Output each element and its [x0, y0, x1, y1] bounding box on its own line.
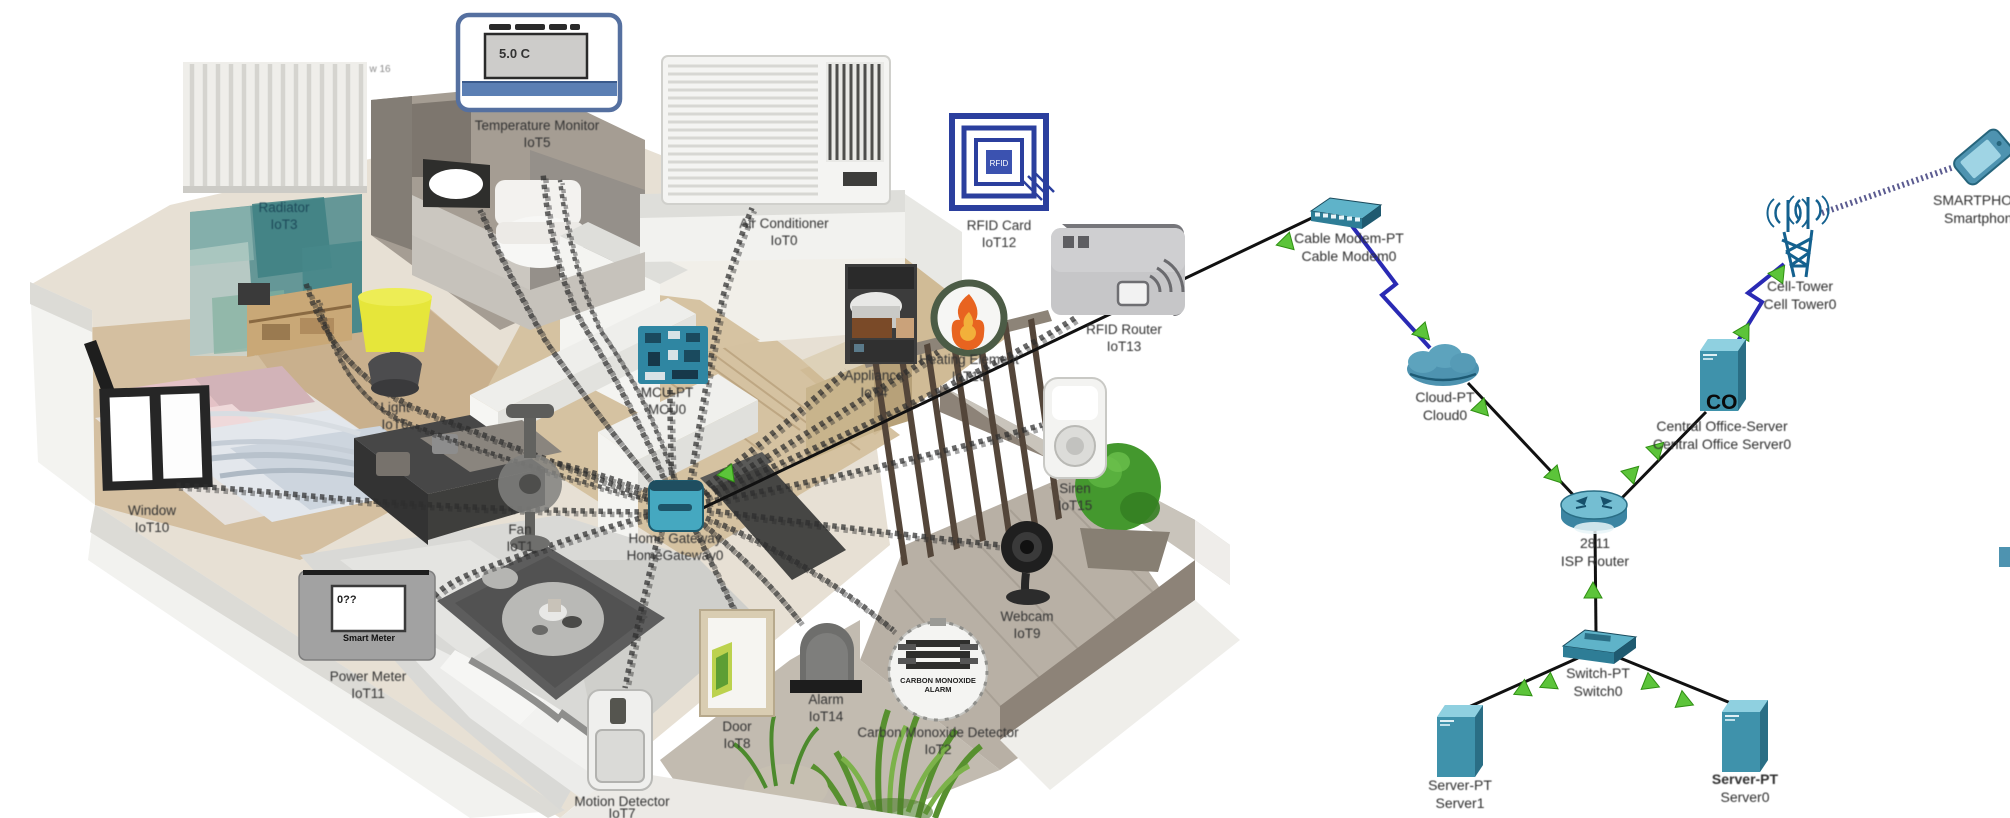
svg-text:RFID: RFID: [990, 159, 1009, 168]
svg-text:Power Meter: Power Meter: [330, 669, 407, 684]
svg-text:Switch0: Switch0: [1573, 683, 1622, 699]
svg-text:MCU0: MCU0: [648, 402, 686, 417]
svg-text:Cloud-PT: Cloud-PT: [1415, 389, 1475, 405]
svg-text:Central Office-Server: Central Office-Server: [1656, 418, 1788, 434]
svg-text:Heating Element: Heating Element: [919, 352, 1019, 367]
svg-text:Central Office Server0: Central Office Server0: [1653, 436, 1791, 452]
svg-text:Server0: Server0: [1720, 789, 1769, 805]
svg-text:Fan: Fan: [508, 522, 531, 537]
svg-text:2811: 2811: [1580, 535, 1610, 551]
svg-text:IoT14: IoT14: [809, 709, 844, 724]
svg-text:IoT8: IoT8: [723, 736, 750, 751]
svg-text:MCU-PT: MCU-PT: [641, 385, 694, 400]
svg-text:Smart Meter: Smart Meter: [343, 633, 396, 643]
svg-text:Smartphone: Smartphone: [1944, 210, 2010, 226]
svg-text:IoT11: IoT11: [351, 686, 385, 701]
svg-text:Cell-Tower: Cell-Tower: [1767, 278, 1833, 294]
svg-text:Door: Door: [722, 719, 752, 734]
svg-text:ISP Router: ISP Router: [1561, 553, 1630, 569]
svg-text:Server-PT: Server-PT: [1712, 771, 1779, 787]
svg-text:IoT10: IoT10: [135, 520, 170, 535]
svg-text:Home Gateway: Home Gateway: [628, 531, 721, 546]
svg-text:IoT0: IoT0: [770, 233, 797, 248]
svg-text:Cell Tower0: Cell Tower0: [1764, 296, 1837, 312]
svg-text:IoT7: IoT7: [608, 806, 635, 818]
svg-text:IoT6: IoT6: [381, 417, 408, 432]
svg-text:IoT12: IoT12: [982, 235, 1017, 250]
svg-text:Alarm: Alarm: [808, 692, 843, 707]
svg-text:IoT9: IoT9: [1013, 626, 1040, 641]
svg-text:ALARM: ALARM: [924, 685, 951, 694]
svg-text:IoT2: IoT2: [924, 742, 951, 757]
svg-text:IoT15: IoT15: [1058, 498, 1093, 513]
svg-text:0??: 0??: [337, 594, 357, 606]
svg-text:Temperature Monitor: Temperature Monitor: [475, 118, 600, 133]
svg-text:Switch-PT: Switch-PT: [1566, 665, 1630, 681]
svg-text:Carbon Monoxide Detector: Carbon Monoxide Detector: [857, 725, 1019, 740]
svg-text:Webcam: Webcam: [1000, 609, 1053, 624]
svg-text:IoT4: IoT4: [860, 385, 888, 400]
svg-text:5.0 C: 5.0 C: [499, 46, 531, 61]
svg-text:w 16: w 16: [368, 64, 391, 75]
svg-text:Cable Modem0: Cable Modem0: [1302, 248, 1397, 264]
svg-text:Siren: Siren: [1059, 481, 1091, 496]
svg-text:Server-PT: Server-PT: [1428, 777, 1492, 793]
svg-text:Cloud0: Cloud0: [1423, 407, 1468, 423]
svg-text:IoT16: IoT16: [952, 369, 987, 384]
svg-text:CARBON MONOXIDE: CARBON MONOXIDE: [900, 676, 976, 685]
svg-text:Light: Light: [380, 400, 410, 415]
svg-text:IoT5: IoT5: [523, 135, 550, 150]
svg-text:SMARTPHONE: SMARTPHONE: [1933, 192, 2010, 208]
svg-text:Server1: Server1: [1435, 795, 1484, 811]
svg-text:Appliance: Appliance: [844, 368, 903, 383]
svg-text:IoT13: IoT13: [1107, 339, 1142, 354]
svg-text:Air Conditioner: Air Conditioner: [739, 216, 829, 231]
svg-text:CO: CO: [1706, 391, 1738, 414]
svg-text:Window: Window: [128, 503, 176, 518]
svg-text:Cable Modem-PT: Cable Modem-PT: [1294, 230, 1404, 246]
svg-text:RFID Router: RFID Router: [1086, 322, 1162, 337]
svg-text:IoT1: IoT1: [506, 539, 533, 554]
svg-text:Radiator: Radiator: [258, 200, 310, 215]
svg-text:HomeGateway0: HomeGateway0: [627, 548, 724, 563]
svg-text:IoT3: IoT3: [270, 217, 297, 232]
svg-text:RFID Card: RFID Card: [967, 218, 1032, 233]
